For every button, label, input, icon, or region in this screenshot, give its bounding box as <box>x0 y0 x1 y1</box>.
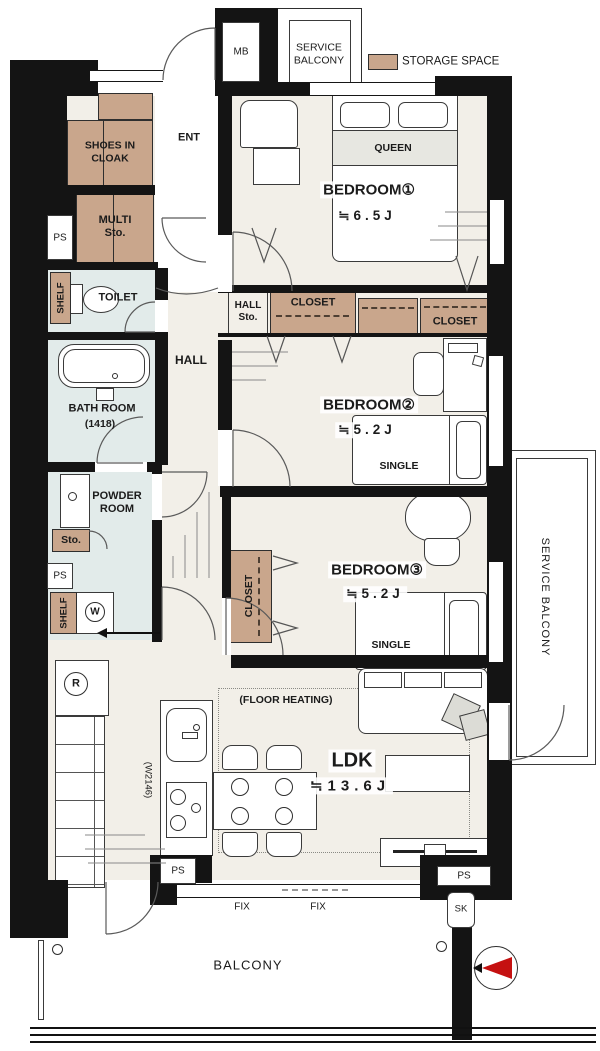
fridge-label: R <box>72 678 80 691</box>
sk-label: SK <box>455 905 468 916</box>
legend-label: STORAGE SPACE <box>402 55 499 68</box>
balcony-label: BALCONY <box>213 959 282 974</box>
closet-bedroom2-label: CLOSET <box>291 297 336 310</box>
floor-plan: STORAGE SPACE MB SERVICE BALCONY SERVICE… <box>0 0 600 1051</box>
toilet-label: TOILET <box>99 292 138 305</box>
bedroom3-name: BEDROOM③ <box>328 561 426 578</box>
bedroom3-single-label: SINGLE <box>371 639 410 651</box>
powder-storage-label: Sto. <box>61 534 81 546</box>
fix-label-left: FIX <box>234 901 250 913</box>
mb-label: MB <box>234 46 249 58</box>
bedroom3-size: ≒5.2J <box>343 586 407 602</box>
bath-size-label: (1418) <box>85 418 115 430</box>
powder-room-label: POWDER ROOM <box>78 490 156 516</box>
toilet-shelf-label: SHELF <box>56 282 67 313</box>
queen-bed-label: QUEEN <box>374 142 411 154</box>
ps-bottom-right-label: PS <box>457 870 470 882</box>
hall-label: HALL <box>175 354 207 368</box>
closet-bedroom3-label: CLOSET <box>243 575 255 618</box>
kitchen-width-label: (W2146) <box>143 762 154 798</box>
powder-shelf-label: SHELF <box>59 597 70 628</box>
hall-storage-label: HALL Sto. <box>230 300 266 324</box>
shoes-in-cloak-label: SHOES IN CLOAK <box>74 139 146 164</box>
fix-label-right: FIX <box>310 901 326 913</box>
floor-heating-label: (FLOOR HEATING) <box>239 694 332 706</box>
washer-label: W <box>90 606 99 618</box>
multi-storage-label: MULTI Sto. <box>91 214 139 240</box>
closet-bedroom1-label: CLOSET <box>433 316 478 329</box>
ps-powder-label: PS <box>53 570 66 582</box>
ent-label: ENT <box>178 132 200 145</box>
bedroom1-name: BEDROOM① <box>320 181 418 198</box>
ps-kitchen-label: PS <box>171 865 184 877</box>
ldk-name: LDK <box>328 750 375 773</box>
service-balcony-top-label: SERVICE BALCONY <box>288 41 350 66</box>
ldk-size: ≒13.6J <box>307 777 393 794</box>
service-balcony-right-label: SERVICE BALCONY <box>539 538 551 657</box>
bedroom1-size: ≒6.5J <box>335 208 399 224</box>
bedroom2-single-label: SINGLE <box>379 460 418 472</box>
bedroom2-size: ≒5.2J <box>335 422 399 438</box>
bath-room-label: BATH ROOM <box>68 403 135 416</box>
ps-top-label: PS <box>53 232 66 244</box>
bedroom2-name: BEDROOM② <box>320 396 418 413</box>
